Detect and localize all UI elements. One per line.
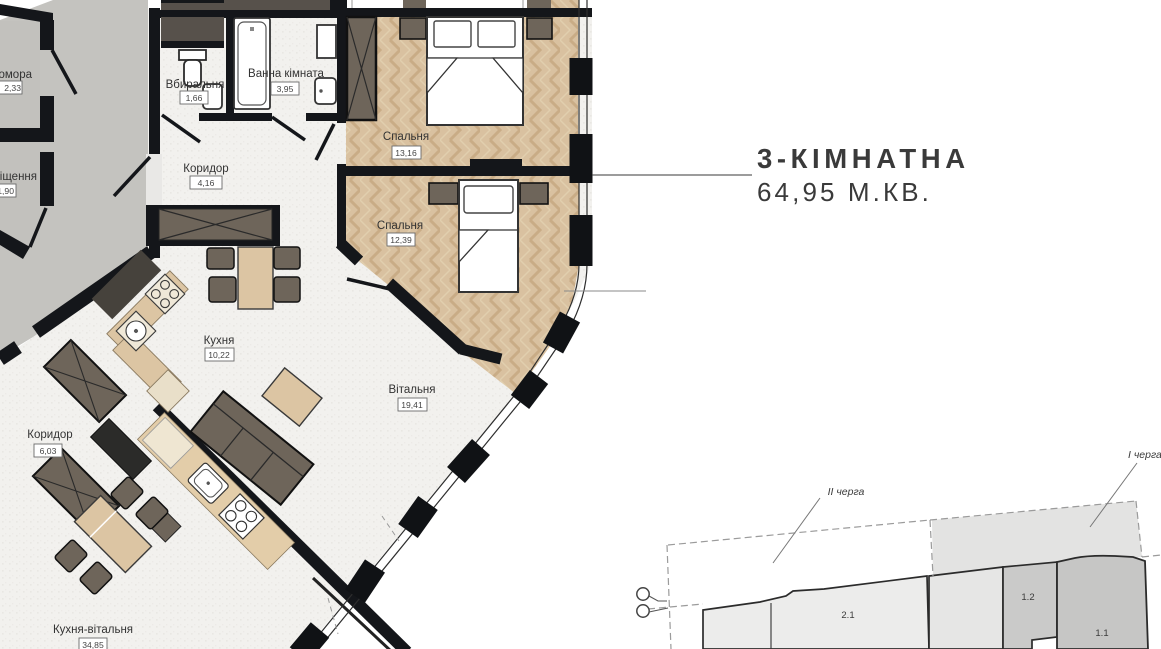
svg-text:Кухня: Кухня — [204, 335, 235, 347]
svg-text:34,85: 34,85 — [82, 640, 104, 649]
svg-text:2,33: 2,33 — [4, 83, 21, 93]
svg-text:приміщення: приміщення — [0, 171, 37, 183]
svg-text:Коридор: Коридор — [27, 429, 72, 441]
svg-text:Коридор: Коридор — [183, 163, 228, 175]
svg-text:64,95 М.КВ.: 64,95 М.КВ. — [757, 177, 932, 207]
svg-text:4,16: 4,16 — [198, 178, 215, 188]
svg-text:19,41: 19,41 — [401, 400, 423, 410]
svg-text:Спальня: Спальня — [383, 131, 429, 143]
svg-text:ІІ черга: ІІ черга — [828, 486, 865, 498]
svg-text:1,66: 1,66 — [186, 93, 203, 103]
svg-text:Кухня-вітальня: Кухня-вітальня — [53, 624, 133, 636]
svg-text:10,22: 10,22 — [208, 350, 230, 360]
svg-text:2.1: 2.1 — [841, 610, 854, 621]
svg-text:1,90: 1,90 — [0, 186, 14, 196]
svg-text:Спальня: Спальня — [377, 220, 423, 232]
svg-text:І черга: І черга — [1128, 449, 1161, 461]
svg-text:Ванна кімната: Ванна кімната — [248, 68, 324, 80]
svg-text:12,39: 12,39 — [390, 235, 412, 245]
svg-text:Вітальня: Вітальня — [388, 384, 435, 396]
svg-text:3,95: 3,95 — [277, 84, 294, 94]
svg-text:3-КІМНАТНА: 3-КІМНАТНА — [757, 143, 970, 174]
svg-text:6,03: 6,03 — [40, 446, 57, 456]
svg-text:Вбиральня: Вбиральня — [166, 79, 225, 91]
svg-text:1.1: 1.1 — [1095, 628, 1108, 639]
svg-text:13,16: 13,16 — [395, 148, 417, 158]
svg-text:1.2: 1.2 — [1021, 592, 1034, 603]
svg-text:Комора: Комора — [0, 69, 33, 81]
